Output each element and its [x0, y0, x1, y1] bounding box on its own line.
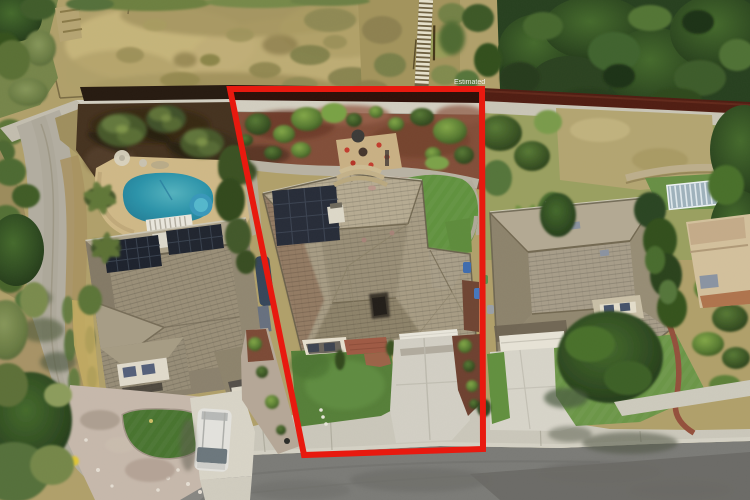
- svg-text:Estimated: Estimated: [454, 79, 485, 86]
